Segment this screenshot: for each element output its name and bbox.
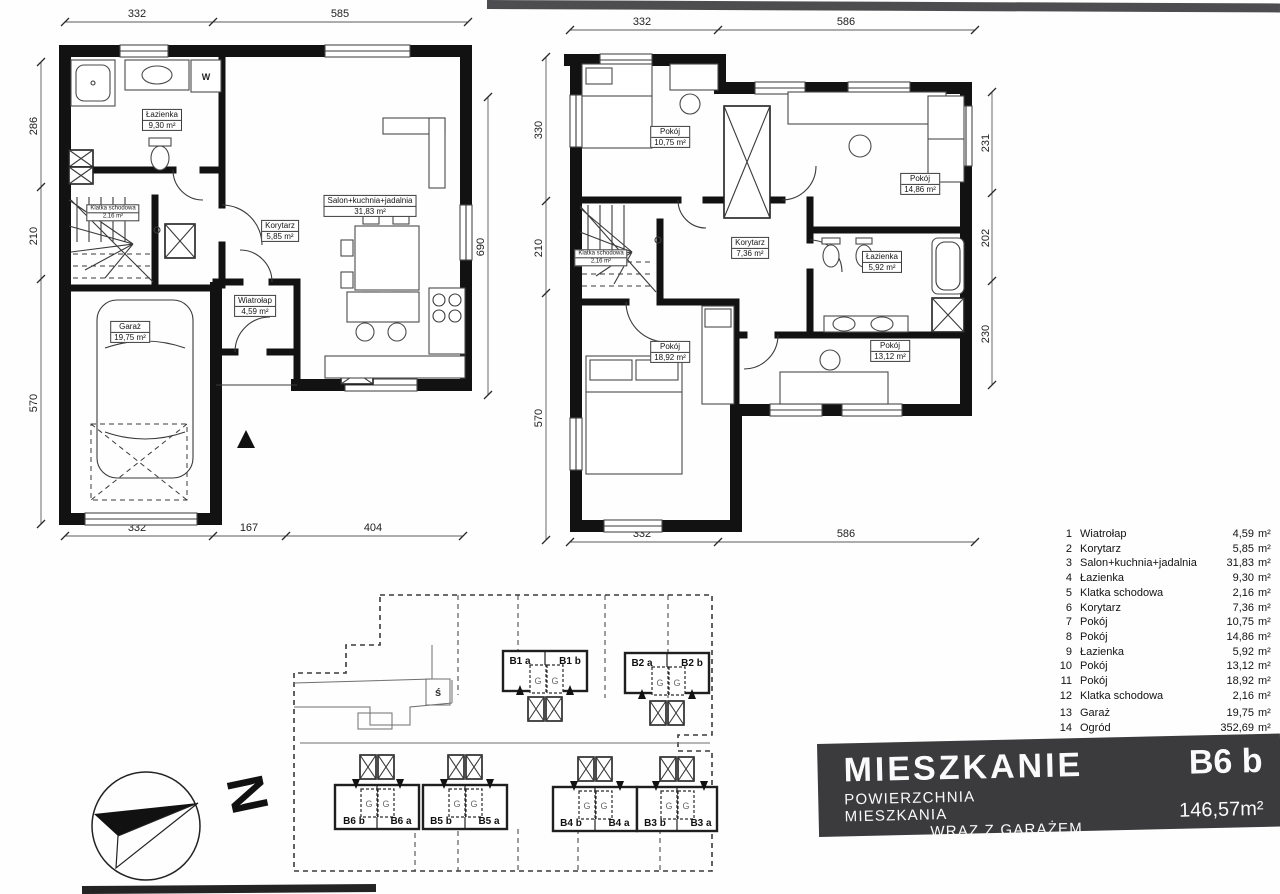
site-building-b3: G G B3 b B3 a: [637, 757, 717, 831]
room-label-pokoj4: Pokój 13,12 m²: [870, 340, 910, 362]
legend-row: 9Łazienka5,92m²: [1056, 645, 1278, 660]
legend-row: 12Klatka schodowa2,16m²: [1056, 689, 1278, 704]
unit-label-b1a: B1 a: [509, 656, 531, 667]
room-label-garaz: Garaż 19,75 m²: [110, 321, 150, 343]
legend-unit: m²: [1254, 659, 1278, 674]
dim-label: 286: [28, 117, 40, 135]
room-area: 9,30 m²: [143, 121, 181, 131]
unit-label-b4a: B4 a: [608, 818, 630, 829]
legend-area: 14,86: [1216, 630, 1254, 645]
legend-row: 1Wiatrołap4,59m²: [1056, 527, 1278, 542]
legend-no: 5: [1056, 586, 1072, 601]
legend-area: 2,16: [1216, 586, 1254, 601]
garage-label: G: [673, 678, 680, 688]
legend-no: 2: [1056, 542, 1072, 557]
dim-label: 210: [28, 227, 40, 245]
legend-unit: m²: [1254, 674, 1278, 689]
title-block-title: MIESZKANIE: [843, 745, 1128, 789]
legend-no: 13: [1056, 706, 1072, 721]
dim-label: 570: [533, 409, 545, 427]
legend-no: 11: [1056, 674, 1072, 689]
unit-label-b2b: B2 b: [681, 658, 703, 669]
legend-unit: m²: [1254, 689, 1278, 704]
legend-unit: m²: [1254, 556, 1278, 571]
room-name: Łazienka: [863, 252, 901, 263]
entrance-triangle-marker: [237, 430, 255, 448]
legend-row: 7Pokój10,75m²: [1056, 615, 1278, 630]
legend-unit: m²: [1254, 601, 1278, 616]
site-plan-drawing: ś G G B1 a B1 b G G B2 a: [280, 583, 740, 888]
dim-label: 210: [533, 239, 545, 257]
unit-label-b1b: B1 b: [559, 656, 581, 667]
legend-name: Łazienka: [1080, 645, 1216, 660]
garage-label: G: [583, 801, 590, 811]
unit-label-b2a: B2 a: [631, 658, 653, 669]
site-building-b6: G G B6 b B6 a: [335, 755, 419, 829]
room-area: 7,36 m²: [732, 249, 768, 259]
room-label-korytarz-2: Korytarz 7,36 m²: [731, 237, 769, 259]
legend-row: 2Korytarz5,85m²: [1056, 542, 1278, 557]
room-label-lazienka-2: Łazienka 5,92 m²: [862, 251, 902, 273]
legend-name: Pokój: [1080, 630, 1216, 645]
north-compass: N: [78, 748, 273, 894]
room-area: 4,59 m²: [235, 307, 275, 317]
legend-name: Ogród: [1080, 721, 1216, 736]
legend-name: Klatka schodowa: [1080, 586, 1216, 601]
legend-name: Łazienka: [1080, 571, 1216, 586]
legend-no: 3: [1056, 556, 1072, 571]
room-area: 5,85 m²: [262, 232, 298, 242]
scanned-floor-plan-page: 332 585 286 210 570 690 332 167 404: [0, 0, 1280, 894]
legend-no: 1: [1056, 527, 1072, 542]
legend-area: 9,30: [1216, 571, 1254, 586]
legend-no: 4: [1056, 571, 1072, 586]
room-name: Korytarz: [732, 238, 768, 249]
unit-label-b3b: B3 b: [644, 818, 666, 829]
legend-no: 10: [1056, 659, 1072, 674]
title-block-right: B6 b 146,57m²: [1127, 742, 1264, 824]
legend-area: 10,75: [1216, 615, 1254, 630]
legend-name: Pokój: [1080, 674, 1216, 689]
legend-row: 10Pokój13,12m²: [1056, 659, 1278, 674]
garage-label: G: [551, 676, 558, 686]
subtitle-line1: POWIERZCHNIA MIESZKANIA: [844, 786, 1083, 825]
room-area: 10,75 m²: [651, 138, 689, 148]
room-name: Łazienka: [143, 110, 181, 121]
legend-area: 13,12: [1216, 659, 1254, 674]
legend-row: 8Pokój14,86m²: [1056, 630, 1278, 645]
floor1-livingroom-furniture: [325, 118, 465, 378]
dim-label: 570: [28, 394, 40, 412]
room-label-salon: Salon+kuchnia+jadalnia 31,83 m²: [324, 195, 417, 217]
room-name: Korytarz: [262, 221, 298, 232]
legend-name: Pokój: [1080, 659, 1216, 674]
dim-label: 332: [128, 8, 146, 20]
floor2-bedroom3-furniture: [586, 306, 734, 474]
site-building-b1: G G B1 a B1 b: [503, 651, 587, 721]
unit-label-b5a: B5 a: [478, 816, 500, 827]
room-area: 31,83 m²: [325, 207, 416, 217]
legend-area: 5,85: [1216, 542, 1254, 557]
garage-label: G: [534, 676, 541, 686]
garage-label: G: [382, 799, 389, 809]
legend-no: 7: [1056, 615, 1072, 630]
unit-label-b3a: B3 a: [690, 818, 712, 829]
dim-label: 202: [980, 229, 992, 247]
room-label-klatka-2: Klatka schodowa 2,16 m²: [574, 249, 627, 266]
room-area: 2,16 m²: [575, 259, 626, 266]
room-name: Garaż: [111, 322, 149, 333]
total-area: 146,57m²: [1179, 798, 1264, 823]
site-building-b5: G G B5 b B5 a: [423, 755, 507, 829]
garage-label: G: [665, 801, 672, 811]
legend-row: 13Garaż19,75m²: [1056, 706, 1278, 721]
legend-area: 5,92: [1216, 645, 1254, 660]
unit-label-b6a: B6 a: [390, 816, 412, 827]
legend-area: 2,16: [1216, 689, 1254, 704]
legend-name: Pokój: [1080, 615, 1216, 630]
unit-label-b4b: B4 b: [560, 818, 582, 829]
legend-area: 31,83: [1216, 556, 1254, 571]
unit-label-b6b: B6 b: [343, 816, 365, 827]
dim-label: 332: [633, 16, 651, 28]
room-label-pokoj3: Pokój 18,92 m²: [650, 341, 690, 363]
room-area: 14,86 m²: [901, 185, 939, 195]
room-area: 13,12 m²: [871, 352, 909, 362]
site-building-b2: G G B2 a B2 b: [625, 653, 709, 725]
legend-row: 3Salon+kuchnia+jadalnia31,83m²: [1056, 556, 1278, 571]
room-label-wiatrolap: Wiatrołap 4,59 m²: [234, 295, 276, 317]
legend-name: Salon+kuchnia+jadalnia: [1080, 556, 1216, 571]
room-area: 5,92 m²: [863, 263, 901, 273]
room-label-pokoj2: Pokój 14,86 m²: [900, 173, 940, 195]
north-letter: N: [214, 770, 273, 819]
dim-label: 585: [331, 8, 349, 20]
legend-no: 12: [1056, 689, 1072, 704]
scan-artifact-bottom-band: [82, 884, 376, 894]
legend-row: 4Łazienka9,30m²: [1056, 571, 1278, 586]
dim-label: 230: [980, 325, 992, 343]
room-name: Pokój: [651, 342, 689, 353]
legend-no: 14: [1056, 721, 1072, 736]
legend-area: 18,92: [1216, 674, 1254, 689]
room-label-klatka-1: Klatka schodowa 2,16 m²: [86, 204, 139, 221]
room-label-korytarz-1: Korytarz 5,85 m²: [261, 220, 299, 242]
legend-name: Korytarz: [1080, 542, 1216, 557]
garage-label: G: [600, 801, 607, 811]
legend-row: 6Korytarz7,36m²: [1056, 601, 1278, 616]
legend-unit: m²: [1254, 630, 1278, 645]
room-area: 2,16 m²: [87, 214, 138, 221]
dim-label: 404: [364, 522, 382, 534]
room-name: Pokój: [651, 127, 689, 138]
dim-label: 330: [533, 121, 545, 139]
garage-label: G: [365, 799, 372, 809]
room-legend: 1Wiatrołap4,59m² 2Korytarz5,85m² 3Salon+…: [1056, 527, 1278, 736]
room-area: 19,75 m²: [111, 333, 149, 343]
room-name: Pokój: [871, 341, 909, 352]
ground-floor-plan-drawing: 332 585 286 210 570 690 332 167 404: [25, 0, 505, 545]
unit-code: B6 b: [1188, 742, 1263, 783]
legend-unit: m²: [1254, 645, 1278, 660]
room-name: Klatka schodowa: [87, 205, 138, 213]
title-block: MIESZKANIE POWIERZCHNIA MIESZKANIA WRAZ …: [817, 733, 1280, 836]
site-marker-label: ś: [435, 687, 441, 699]
title-block-subtitle: POWIERZCHNIA MIESZKANIA WRAZ Z GARAŻEM: [844, 786, 1083, 842]
legend-unit: m²: [1254, 542, 1278, 557]
north-arrow-icon: [94, 803, 198, 836]
legend-unit: m²: [1254, 615, 1278, 630]
garage-label: G: [682, 801, 689, 811]
legend-area: 19,75: [1216, 706, 1254, 721]
room-label-pokoj1: Pokój 10,75 m²: [650, 126, 690, 148]
legend-unit: m²: [1254, 527, 1278, 542]
legend-name: Klatka schodowa: [1080, 689, 1216, 704]
legend-row: 5Klatka schodowa2,16m²: [1056, 586, 1278, 601]
site-building-b4: G G B4 b B4 a: [553, 757, 637, 831]
garage-label: G: [470, 799, 477, 809]
legend-unit: m²: [1254, 706, 1278, 721]
dim-label: 167: [240, 522, 258, 534]
legend-area: 4,59: [1216, 527, 1254, 542]
dim-label: 586: [837, 528, 855, 540]
legend-row: 11Pokój18,92m²: [1056, 674, 1278, 689]
dim-label: 586: [837, 16, 855, 28]
floor2-bedroom2-furniture: [788, 92, 964, 182]
unit-label-b5b: B5 b: [430, 816, 452, 827]
dim-label: 231: [980, 134, 992, 152]
dim-label: 690: [475, 238, 487, 256]
room-name: Salon+kuchnia+jadalnia: [325, 196, 416, 207]
legend-unit: m²: [1254, 586, 1278, 601]
legend-no: 9: [1056, 645, 1072, 660]
room-name: Wiatrołap: [235, 296, 275, 307]
legend-name: Garaż: [1080, 706, 1216, 721]
legend-no: 6: [1056, 601, 1072, 616]
legend-unit: m²: [1254, 571, 1278, 586]
garage-label: G: [656, 678, 663, 688]
room-name: Pokój: [901, 174, 939, 185]
room-label-lazienka-1: Łazienka 9,30 m²: [142, 109, 182, 131]
legend-name: Korytarz: [1080, 601, 1216, 616]
legend-area: 7,36: [1216, 601, 1254, 616]
legend-no: 8: [1056, 630, 1072, 645]
garage-label: G: [453, 799, 460, 809]
washer-label: W: [202, 72, 211, 82]
title-block-left: MIESZKANIE POWIERZCHNIA MIESZKANIA WRAZ …: [843, 745, 1129, 830]
upper-floor-plan-drawing: 332 586 330 210 570 231 202 230 332 586: [530, 0, 1010, 550]
room-area: 18,92 m²: [651, 353, 689, 363]
legend-name: Wiatrołap: [1080, 527, 1216, 542]
room-name: Klatka schodowa: [575, 250, 626, 258]
